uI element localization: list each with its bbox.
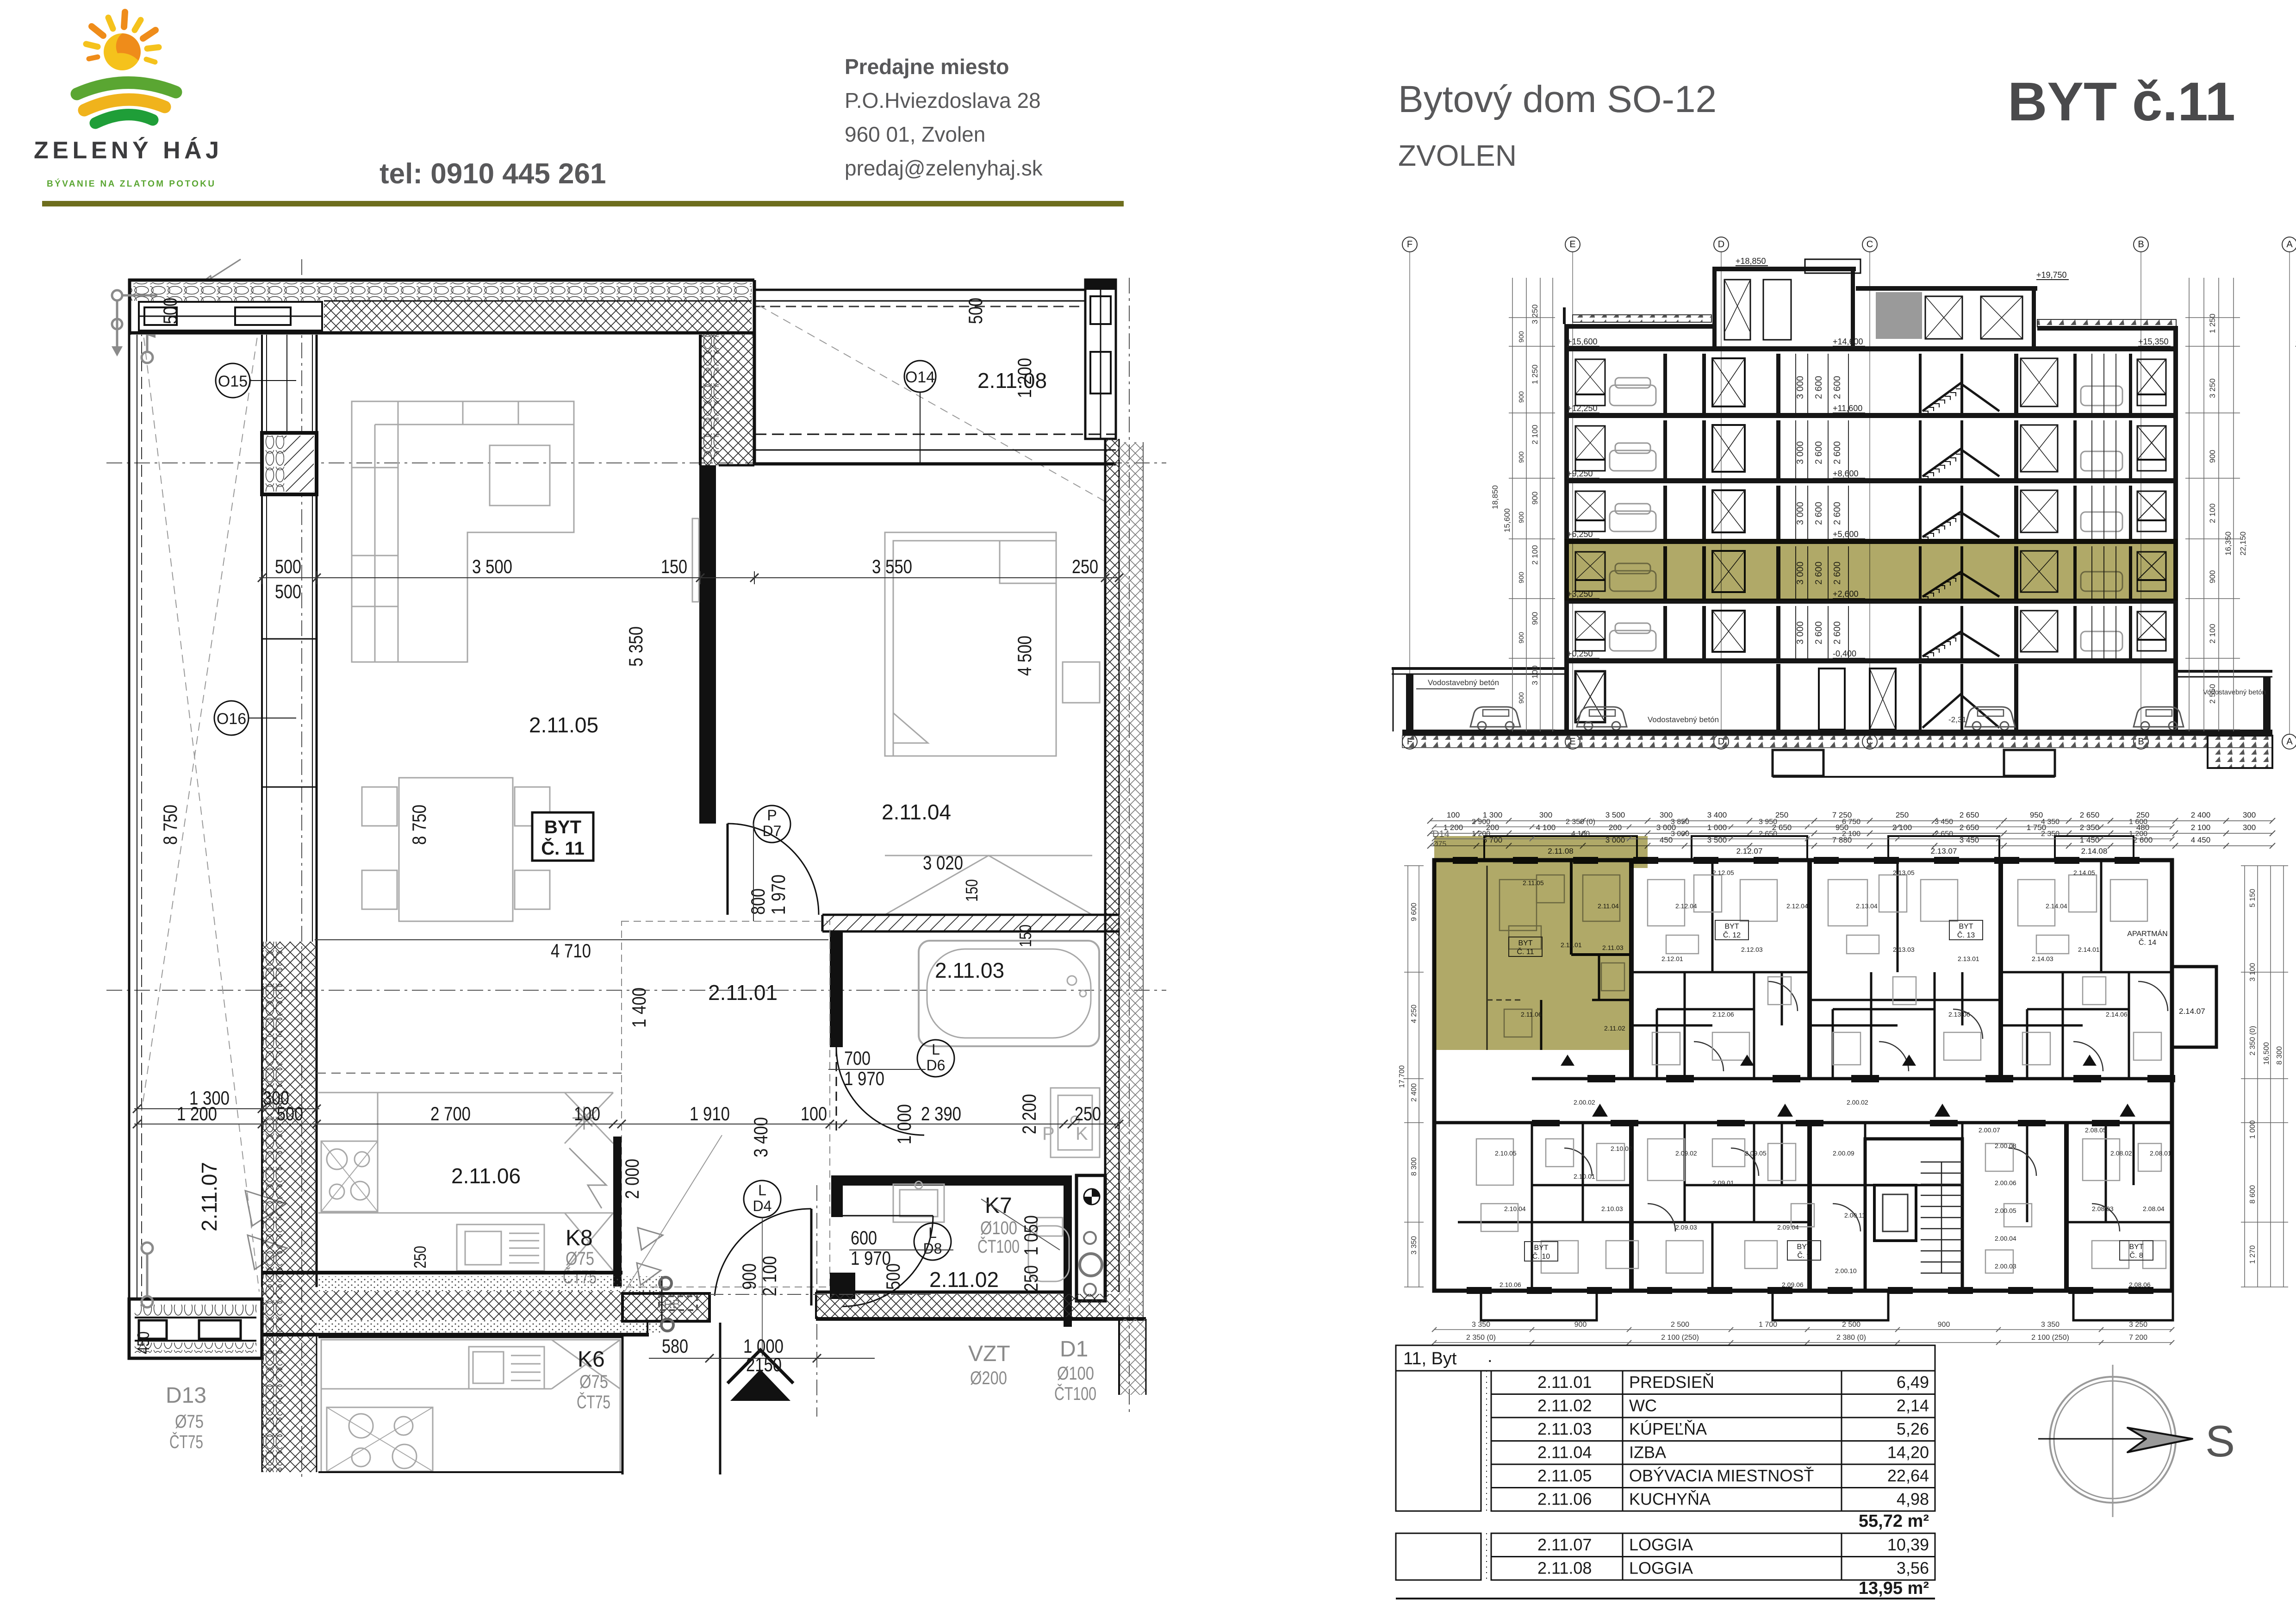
svg-text:Č. 8: Č. 8 <box>2129 1251 2143 1260</box>
svg-text:Č. 12: Č. 12 <box>1723 931 1741 939</box>
svg-text:K8: K8 <box>566 1226 593 1250</box>
svg-text:580: 580 <box>662 1335 688 1357</box>
svg-text:1 970: 1 970 <box>767 874 789 915</box>
svg-text:960 01, Zvolen: 960 01, Zvolen <box>845 122 985 146</box>
svg-text:2.12.03: 2.12.03 <box>1741 946 1763 953</box>
svg-text:2,14: 2,14 <box>1897 1396 1929 1415</box>
svg-text:2.08.06: 2.08.06 <box>2129 1281 2151 1288</box>
svg-text:KÚPEĽŇA: KÚPEĽŇA <box>1629 1419 1707 1438</box>
svg-text:WC: WC <box>1629 1396 1657 1415</box>
svg-text:2.08.04: 2.08.04 <box>2143 1205 2165 1212</box>
svg-text:900: 900 <box>1518 451 1525 463</box>
svg-text:2 650: 2 650 <box>1960 823 1979 832</box>
svg-text:2.13.04: 2.13.04 <box>1856 902 1878 910</box>
svg-text:600: 600 <box>851 1227 877 1249</box>
svg-text:2.10.03: 2.10.03 <box>1601 1205 1623 1212</box>
svg-text:BYT: BYT <box>1797 1243 1811 1251</box>
svg-text:2 600: 2 600 <box>1832 502 1842 525</box>
svg-text:2.09.04: 2.09.04 <box>1777 1224 1799 1231</box>
svg-text:3 500: 3 500 <box>472 556 512 577</box>
svg-text:8 750: 8 750 <box>159 805 181 845</box>
svg-text:+15,350: +15,350 <box>2138 337 2169 346</box>
svg-text:3 350: 3 350 <box>1472 1321 1490 1329</box>
svg-text:13,95 m²: 13,95 m² <box>1859 1579 1929 1598</box>
svg-text:BYT: BYT <box>2129 1243 2143 1251</box>
svg-text:15,600: 15,600 <box>1503 508 1512 532</box>
svg-text:+8,600: +8,600 <box>1833 469 1859 478</box>
svg-text:2 400: 2 400 <box>2191 811 2211 819</box>
svg-text:O16: O16 <box>217 710 246 728</box>
svg-text:500: 500 <box>882 1263 904 1290</box>
svg-text:2 650: 2 650 <box>1960 811 1979 819</box>
svg-text:1 910: 1 910 <box>690 1103 730 1124</box>
svg-text:250: 250 <box>411 1246 429 1268</box>
svg-text:D4: D4 <box>753 1198 772 1214</box>
svg-text:1 050: 1 050 <box>1020 1215 1042 1255</box>
svg-text:+11,600: +11,600 <box>1833 404 1862 413</box>
svg-text:5 150: 5 150 <box>2249 889 2257 907</box>
svg-text:2.13.07: 2.13.07 <box>1931 847 1957 856</box>
svg-text:2 700: 2 700 <box>430 1103 471 1124</box>
svg-text:2.10.02: 2.10.02 <box>1611 1145 1632 1152</box>
svg-text:P: P <box>767 807 777 824</box>
svg-text:900: 900 <box>1531 492 1539 505</box>
svg-text:+19,750: +19,750 <box>2036 270 2067 280</box>
svg-text:2150: 2150 <box>746 1354 782 1375</box>
svg-text:Ø75: Ø75 <box>566 1249 594 1269</box>
svg-text:1 200: 1 200 <box>177 1103 217 1124</box>
svg-text:900: 900 <box>738 1263 760 1290</box>
svg-text:3 500: 3 500 <box>1605 811 1625 819</box>
svg-text:2.11.08: 2.11.08 <box>1537 1559 1592 1578</box>
svg-text:1 600: 1 600 <box>2129 818 2147 826</box>
svg-text:+0,250: +0,250 <box>1567 649 1593 658</box>
svg-text:2.10.06: 2.10.06 <box>1500 1281 1521 1288</box>
svg-text:900: 900 <box>1518 572 1525 583</box>
svg-text:2.14.05: 2.14.05 <box>2073 869 2095 876</box>
svg-text:2 500: 2 500 <box>1842 1321 1860 1329</box>
svg-text:11, Byt: 11, Byt <box>1403 1349 1457 1368</box>
svg-text:D8: D8 <box>923 1240 942 1257</box>
svg-text:2 650: 2 650 <box>1935 830 1953 838</box>
svg-text:2.11.02: 2.11.02 <box>929 1268 999 1292</box>
svg-text:1 200: 1 200 <box>1472 830 1490 838</box>
svg-text:2.00.02: 2.00.02 <box>1847 1099 1868 1106</box>
svg-text:2 380 (0): 2 380 (0) <box>1836 1334 1866 1342</box>
svg-text:2 400: 2 400 <box>1410 1083 1418 1102</box>
svg-text:2.12.01: 2.12.01 <box>1661 955 1683 962</box>
svg-text:2.14.03: 2.14.03 <box>2032 955 2053 962</box>
svg-text:+12,250: +12,250 <box>1567 404 1598 413</box>
svg-text:2 390: 2 390 <box>921 1103 961 1124</box>
svg-text:VZT: VZT <box>968 1342 1010 1366</box>
svg-text:2.08.05: 2.08.05 <box>2085 1126 2107 1134</box>
svg-text:3 000: 3 000 <box>1795 502 1805 525</box>
svg-text:PREDSIEŇ: PREDSIEŇ <box>1629 1373 1714 1392</box>
svg-text:2 600: 2 600 <box>1832 441 1842 464</box>
svg-text:E: E <box>1569 239 1575 250</box>
svg-text:2 100: 2 100 <box>2208 503 2217 523</box>
svg-text:250: 250 <box>1896 811 1909 819</box>
svg-text:3 850: 3 850 <box>1671 818 1689 826</box>
svg-text:4,98: 4,98 <box>1897 1490 1929 1509</box>
svg-text:ČT100: ČT100 <box>1054 1383 1096 1404</box>
svg-text:2 100: 2 100 <box>2208 624 2217 643</box>
svg-text:LOGGIA: LOGGIA <box>1629 1535 1693 1554</box>
svg-text:3 250: 3 250 <box>2129 1321 2147 1329</box>
svg-text:500: 500 <box>275 581 301 602</box>
svg-text:2.11.07: 2.11.07 <box>197 1162 221 1231</box>
svg-text:16,350: 16,350 <box>2224 531 2233 556</box>
svg-text:BYT č.11: BYT č.11 <box>2008 71 2235 132</box>
svg-text:800: 800 <box>747 888 769 915</box>
svg-text:D13: D13 <box>166 1383 206 1408</box>
svg-text:Ø100: Ø100 <box>980 1218 1017 1238</box>
svg-text:2 550: 2 550 <box>2208 684 2217 704</box>
svg-text:-0,400: -0,400 <box>1833 649 1856 658</box>
svg-text:100: 100 <box>1447 811 1460 819</box>
svg-text:22,64: 22,64 <box>1887 1466 1929 1485</box>
svg-text:22,150: 22,150 <box>2239 531 2247 556</box>
svg-text:2 100: 2 100 <box>1842 830 1860 838</box>
svg-text:250: 250 <box>1775 811 1788 819</box>
svg-text:150: 150 <box>661 556 687 577</box>
svg-text:100: 100 <box>801 1103 827 1124</box>
svg-text:3,56: 3,56 <box>1897 1559 1929 1578</box>
svg-text:250: 250 <box>1020 1265 1042 1292</box>
svg-text:2.11.05: 2.11.05 <box>529 713 598 737</box>
svg-text:500: 500 <box>964 298 986 324</box>
svg-text:2.11.03: 2.11.03 <box>1537 1419 1592 1438</box>
svg-text:Č. 11: Č. 11 <box>541 837 584 859</box>
svg-text:B: B <box>2138 239 2144 250</box>
svg-text:3 450: 3 450 <box>1935 818 1953 826</box>
svg-text:-2,31: -2,31 <box>1948 715 1966 724</box>
svg-text:500: 500 <box>277 1103 303 1124</box>
svg-text:2 100: 2 100 <box>759 1256 780 1296</box>
svg-text:8 750: 8 750 <box>408 805 430 845</box>
svg-text:2.14.08: 2.14.08 <box>2081 847 2108 856</box>
svg-text:IZBA: IZBA <box>1629 1443 1666 1462</box>
svg-text:ZELENÝ HÁJ: ZELENÝ HÁJ <box>34 137 223 164</box>
svg-text:8 600: 8 600 <box>2249 1185 2257 1204</box>
svg-text:2 350: 2 350 <box>2041 830 2060 838</box>
svg-text:+15,600: +15,600 <box>1567 337 1598 346</box>
svg-text:O14: O14 <box>905 369 935 386</box>
svg-text:RB: RB <box>664 1297 680 1311</box>
svg-text:2.00.05: 2.00.05 <box>1995 1207 2016 1214</box>
svg-text:D1: D1 <box>1060 1337 1088 1362</box>
svg-text:2.13.06: 2.13.06 <box>1948 1011 1970 1018</box>
svg-text:2.11.03: 2.11.03 <box>935 958 1004 982</box>
svg-text:3 400: 3 400 <box>1707 811 1727 819</box>
svg-text:1 700: 1 700 <box>1759 1321 1777 1329</box>
svg-text:P.O.Hviezdoslava 28: P.O.Hviezdoslava 28 <box>845 88 1041 112</box>
svg-text:2 200: 2 200 <box>1018 1094 1040 1134</box>
svg-text:A: A <box>2286 239 2293 250</box>
svg-text:2.14.07: 2.14.07 <box>2179 1007 2205 1016</box>
svg-text:tel: 0910 445 261: tel: 0910 445 261 <box>380 158 606 190</box>
svg-text:Ø75: Ø75 <box>175 1412 204 1432</box>
svg-text:10,39: 10,39 <box>1887 1535 1929 1554</box>
svg-text:18,850: 18,850 <box>1491 485 1500 509</box>
svg-text:16,500: 16,500 <box>2263 1042 2271 1065</box>
svg-text:2.00.08: 2.00.08 <box>1995 1142 2016 1149</box>
svg-text:2 100 (250): 2 100 (250) <box>2031 1334 2069 1342</box>
svg-text:1 200: 1 200 <box>1014 358 1035 398</box>
svg-text:1 000: 1 000 <box>893 1104 915 1144</box>
svg-text:Predajne miesto: Predajne miesto <box>845 55 1009 79</box>
svg-text:2.11.04: 2.11.04 <box>882 800 951 824</box>
svg-text:8 300: 8 300 <box>1410 1157 1418 1176</box>
svg-text:2 650: 2 650 <box>2080 811 2100 819</box>
svg-text:5 350: 5 350 <box>625 626 647 667</box>
svg-text:200: 200 <box>1609 823 1622 832</box>
svg-text:3 000: 3 000 <box>1795 621 1805 644</box>
svg-text:2.11.06: 2.11.06 <box>1537 1490 1592 1509</box>
svg-text:2.00.02: 2.00.02 <box>1574 1099 1595 1106</box>
svg-text:BYT: BYT <box>544 817 581 837</box>
svg-text:3 350: 3 350 <box>2041 1321 2060 1329</box>
svg-text:3 100: 3 100 <box>2249 963 2257 981</box>
svg-text:2.08.03: 2.08.03 <box>2092 1205 2114 1212</box>
svg-text:+18,850: +18,850 <box>1736 256 1766 266</box>
svg-text:100: 100 <box>574 1103 600 1124</box>
svg-text:2 100: 2 100 <box>1531 425 1539 444</box>
svg-text:4 250: 4 250 <box>1410 1005 1418 1023</box>
svg-text:2 100: 2 100 <box>2191 823 2211 832</box>
svg-text:L: L <box>928 1224 937 1241</box>
svg-text:APARTMÁN: APARTMÁN <box>2127 929 2167 938</box>
svg-text:1 400: 1 400 <box>628 987 650 1028</box>
svg-text:900: 900 <box>2208 570 2217 583</box>
svg-text:2.11.04: 2.11.04 <box>1537 1443 1592 1462</box>
svg-text:Vodostavebný betón: Vodostavebný betón <box>1648 715 1719 724</box>
svg-text:2 100 (250): 2 100 (250) <box>1661 1334 1699 1342</box>
svg-text:2.14.01: 2.14.01 <box>2078 946 2100 953</box>
svg-text:17,700: 17,700 <box>1398 1065 1406 1088</box>
svg-text:2.12.06: 2.12.06 <box>1712 1011 1734 1018</box>
svg-text:+14,600: +14,600 <box>1833 337 1863 346</box>
svg-text:2.11.01: 2.11.01 <box>1537 1373 1592 1392</box>
svg-text:Č. 9: Č. 9 <box>1797 1251 1811 1260</box>
svg-text:2.00.03: 2.00.03 <box>1995 1262 2016 1270</box>
svg-text:D: D <box>1718 239 1724 250</box>
svg-text:250: 250 <box>1072 556 1098 577</box>
svg-text:2 350: 2 350 <box>2080 823 2100 832</box>
svg-text:4 100: 4 100 <box>1571 830 1590 838</box>
svg-text:2.11.08: 2.11.08 <box>977 369 1047 393</box>
svg-text:2 100: 2 100 <box>1531 545 1539 565</box>
svg-text:3 000: 3 000 <box>1795 441 1805 464</box>
svg-text:2 600: 2 600 <box>1814 376 1824 399</box>
svg-text:2 600: 2 600 <box>1814 441 1824 464</box>
svg-text:2.09.06: 2.09.06 <box>1782 1281 1804 1288</box>
svg-text:500: 500 <box>159 298 181 324</box>
svg-text:2.08.01: 2.08.01 <box>2150 1149 2172 1157</box>
svg-text:Ø100: Ø100 <box>1057 1363 1094 1384</box>
svg-text:2.14.04: 2.14.04 <box>2046 902 2067 910</box>
svg-text:900: 900 <box>2208 450 2217 463</box>
svg-text:.: . <box>1487 1347 1493 1366</box>
svg-text:4 450: 4 450 <box>2191 836 2211 844</box>
svg-text:A: A <box>2286 737 2293 747</box>
svg-text:2.00.11: 2.00.11 <box>1844 1212 1866 1219</box>
svg-text:2 350 (0): 2 350 (0) <box>1466 1334 1496 1342</box>
svg-text:3 550: 3 550 <box>872 556 912 577</box>
svg-text:2.00.09: 2.00.09 <box>1833 1149 1854 1157</box>
svg-text:Ø200: Ø200 <box>970 1368 1007 1388</box>
svg-text:2 100: 2 100 <box>1892 823 1912 832</box>
svg-text:LOGGIA: LOGGIA <box>1629 1559 1693 1578</box>
svg-text:3 020: 3 020 <box>923 852 963 874</box>
svg-text:300: 300 <box>1539 811 1552 819</box>
svg-text:5,26: 5,26 <box>1897 1419 1929 1438</box>
svg-text:2.00.10: 2.00.10 <box>1835 1267 1857 1274</box>
svg-text:2.10.01: 2.10.01 <box>1574 1173 1595 1180</box>
svg-text:2 900: 2 900 <box>1472 818 1490 826</box>
svg-text:2.09.03: 2.09.03 <box>1675 1224 1697 1231</box>
svg-text:900: 900 <box>1531 612 1539 625</box>
svg-text:KUCHYŇA: KUCHYŇA <box>1629 1490 1711 1509</box>
svg-text:300: 300 <box>2243 811 2256 819</box>
svg-text:predaj@zelenyhaj.sk: predaj@zelenyhaj.sk <box>845 156 1043 180</box>
svg-text:2.08.02: 2.08.02 <box>2110 1149 2132 1157</box>
svg-text:450: 450 <box>134 1331 153 1354</box>
svg-text:2.13.03: 2.13.03 <box>1893 946 1915 953</box>
svg-text:O15: O15 <box>218 373 248 390</box>
svg-text:Č. 14: Č. 14 <box>2139 938 2156 947</box>
svg-text:BYT: BYT <box>1534 1244 1548 1252</box>
svg-text:2.09.01: 2.09.01 <box>1712 1179 1734 1187</box>
svg-text:ČT100: ČT100 <box>977 1236 1020 1257</box>
svg-text:2.00.04: 2.00.04 <box>1995 1235 2016 1242</box>
svg-text:1 970: 1 970 <box>844 1068 884 1089</box>
svg-text:OBÝVACIA MIESTNOSŤ: OBÝVACIA MIESTNOSŤ <box>1629 1466 1814 1485</box>
svg-text:L: L <box>758 1182 766 1199</box>
svg-text:900: 900 <box>1518 632 1525 643</box>
svg-text:2.09.02: 2.09.02 <box>1675 1149 1697 1157</box>
svg-text:900: 900 <box>1518 512 1525 523</box>
svg-text:900: 900 <box>1574 1321 1587 1329</box>
svg-text:ČT75: ČT75 <box>577 1392 610 1412</box>
svg-text:P: P <box>1042 1124 1055 1144</box>
svg-text:500: 500 <box>275 556 301 577</box>
svg-text:F: F <box>1407 239 1412 250</box>
svg-text:4 710: 4 710 <box>551 940 591 962</box>
svg-text:2.12.04: 2.12.04 <box>1786 902 1808 910</box>
svg-text:2.00.06: 2.00.06 <box>1995 1179 2016 1187</box>
svg-text:2.10.04: 2.10.04 <box>1504 1205 1526 1212</box>
svg-text:3 250: 3 250 <box>1531 304 1539 324</box>
svg-text:2 600: 2 600 <box>1832 376 1842 399</box>
svg-text:2 650: 2 650 <box>1759 830 1777 838</box>
svg-text:2.13.05: 2.13.05 <box>1893 869 1915 876</box>
svg-text:2 600: 2 600 <box>1814 621 1824 644</box>
svg-text:K6: K6 <box>578 1347 605 1372</box>
svg-text:9 600: 9 600 <box>1410 903 1418 921</box>
svg-text:BYT: BYT <box>1959 923 1973 931</box>
svg-text:55,72 m²: 55,72 m² <box>1859 1512 1929 1531</box>
svg-text:2.11.01: 2.11.01 <box>708 981 778 1005</box>
svg-text:4 100: 4 100 <box>1536 823 1556 832</box>
svg-text:300: 300 <box>2243 823 2256 832</box>
svg-text:4 500: 4 500 <box>1014 636 1035 676</box>
svg-text:2 350 (0): 2 350 (0) <box>2249 1026 2257 1056</box>
svg-text:1 270: 1 270 <box>2249 1245 2257 1264</box>
svg-text:900: 900 <box>1518 692 1525 704</box>
svg-text:2.14.06: 2.14.06 <box>2106 1011 2128 1018</box>
svg-text:Ø75: Ø75 <box>579 1372 608 1392</box>
svg-text:2.09.05: 2.09.05 <box>1745 1149 1767 1157</box>
svg-text:1 250: 1 250 <box>1531 364 1539 384</box>
svg-text:2.13.01: 2.13.01 <box>1958 955 1979 962</box>
svg-text:250: 250 <box>1075 1103 1101 1124</box>
svg-text:4 350: 4 350 <box>2041 818 2060 826</box>
svg-text:1 200: 1 200 <box>2129 830 2147 838</box>
svg-text:Bytový dom SO-12: Bytový dom SO-12 <box>1398 78 1717 120</box>
svg-text:2.11.07: 2.11.07 <box>1537 1535 1592 1554</box>
svg-text:2.11.02: 2.11.02 <box>1537 1396 1592 1415</box>
svg-text:14,20: 14,20 <box>1887 1443 1929 1462</box>
svg-text:900: 900 <box>1938 1321 1950 1329</box>
svg-text:2.12.07: 2.12.07 <box>1736 847 1763 856</box>
svg-text:ZVOLEN: ZVOLEN <box>1398 139 1517 172</box>
svg-text:2 600: 2 600 <box>1832 621 1842 644</box>
svg-text:Vodostavebný betón: Vodostavebný betón <box>1428 678 1499 687</box>
svg-text:BÝVANIE NA ZLATOM POTOKU: BÝVANIE NA ZLATOM POTOKU <box>47 179 216 189</box>
svg-text:BYT: BYT <box>1724 923 1739 931</box>
svg-text:+5,600: +5,600 <box>1833 530 1859 539</box>
svg-text:700: 700 <box>844 1047 871 1069</box>
svg-text:3 350: 3 350 <box>1410 1236 1418 1255</box>
svg-text:900: 900 <box>1518 331 1525 343</box>
svg-text:3 000: 3 000 <box>1671 830 1689 838</box>
svg-text:3 950: 3 950 <box>1759 818 1777 826</box>
svg-text:1 000: 1 000 <box>1707 823 1727 832</box>
svg-text:2 500: 2 500 <box>1671 1321 1689 1329</box>
svg-text:K: K <box>1076 1124 1088 1144</box>
svg-text:7 200: 7 200 <box>2129 1334 2147 1342</box>
svg-text:C: C <box>1867 239 1873 250</box>
svg-text:6,49: 6,49 <box>1897 1373 1929 1392</box>
svg-text:6 750: 6 750 <box>1842 818 1860 826</box>
svg-text:K7: K7 <box>985 1193 1012 1218</box>
svg-text:2.11.06: 2.11.06 <box>451 1164 521 1188</box>
svg-text:+9,250: +9,250 <box>1567 469 1593 478</box>
svg-text:2 350 (0): 2 350 (0) <box>1566 818 1595 826</box>
svg-text:8 300: 8 300 <box>2276 1046 2284 1065</box>
svg-text:1 000: 1 000 <box>2249 1120 2257 1139</box>
svg-text:ČT75: ČT75 <box>169 1431 203 1452</box>
svg-text:D7: D7 <box>763 823 782 839</box>
svg-text:+6,250: +6,250 <box>1567 530 1593 539</box>
svg-text:3 100: 3 100 <box>1531 665 1539 685</box>
svg-text:2.10.05: 2.10.05 <box>1495 1149 1517 1157</box>
svg-text:1 250: 1 250 <box>2208 313 2217 333</box>
svg-text:L: L <box>932 1041 940 1058</box>
svg-text:2.12.05: 2.12.05 <box>1712 869 1734 876</box>
svg-text:2 000: 2 000 <box>621 1159 643 1199</box>
svg-text:3 000: 3 000 <box>1795 376 1805 399</box>
svg-text:150: 150 <box>1016 924 1035 947</box>
svg-text:2.00.07: 2.00.07 <box>1979 1126 2000 1134</box>
svg-text:3 250: 3 250 <box>2208 378 2217 398</box>
svg-text:D6: D6 <box>927 1057 946 1074</box>
svg-text:2 600: 2 600 <box>1814 502 1824 525</box>
svg-text:S: S <box>2205 1417 2235 1466</box>
svg-text:2.12.04: 2.12.04 <box>1675 902 1697 910</box>
